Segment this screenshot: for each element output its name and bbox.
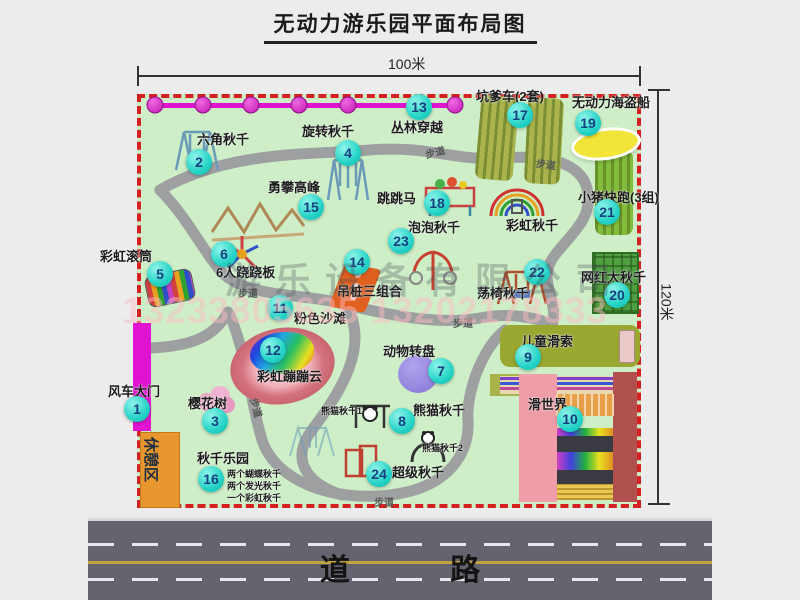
marker-2: 2 bbox=[186, 149, 212, 175]
zipline-pulley bbox=[447, 97, 464, 114]
label-hex-swing: 六角秋千 bbox=[197, 129, 249, 148]
marker-10: 10 bbox=[557, 406, 583, 432]
marker-24: 24 bbox=[366, 461, 392, 487]
marker-12: 12 bbox=[260, 337, 286, 363]
label-panda-swing-1: 熊猫秋千1 bbox=[321, 404, 362, 417]
rest-area-label: 休憩区 bbox=[141, 437, 179, 482]
zipline-tower-icon bbox=[619, 330, 635, 363]
slide-world-wave-slide bbox=[557, 484, 613, 500]
zipline-pulley bbox=[195, 97, 212, 114]
marker-21: 21 bbox=[594, 199, 620, 225]
slide-world-dark-band bbox=[557, 470, 613, 484]
marker-8: 8 bbox=[389, 408, 415, 434]
label-footpath: 步道 bbox=[374, 494, 394, 509]
label-rainbow-swing: 彩虹秋千 bbox=[506, 215, 558, 234]
label-animal-turntable: 动物转盘 bbox=[383, 341, 435, 360]
label-pit-car: 坑爹车(2套) bbox=[476, 86, 544, 105]
marker-1: 1 bbox=[124, 396, 150, 422]
label-rainbow-cloud: 彩虹蹦蹦云 bbox=[257, 366, 322, 385]
marker-16: 16 bbox=[198, 466, 224, 492]
zipline-pulley bbox=[147, 97, 164, 114]
label-panda-swing: 熊猫秋千 bbox=[413, 400, 465, 419]
label-pirate-ship: 无动力海盗船 bbox=[572, 92, 650, 111]
label-rotating-swing: 旋转秋千 bbox=[302, 121, 354, 140]
label-jumping-horse: 跳跳马 bbox=[377, 188, 416, 207]
label-rainbow-roller: 彩虹滚筒 bbox=[100, 246, 152, 265]
label-swing-park-note-3: 一个彩虹秋千 bbox=[227, 491, 281, 504]
label-swing-park: 秋千乐园 bbox=[197, 448, 249, 467]
swing-park-doodles-icon bbox=[286, 420, 346, 460]
slide-world-red-band bbox=[613, 372, 637, 502]
slide-world-dark-band bbox=[557, 436, 613, 452]
watermark-phone: 13233805635 13202178333 bbox=[122, 290, 608, 332]
marker-15: 15 bbox=[298, 194, 324, 220]
label-panda-swing-2: 熊猫秋千2 bbox=[422, 441, 463, 454]
marker-13: 13 bbox=[406, 94, 432, 120]
marker-4: 4 bbox=[335, 140, 361, 166]
marker-17: 17 bbox=[507, 102, 533, 128]
rest-area-box: 休憩区 bbox=[140, 432, 180, 508]
label-bubble-swing: 泡泡秋千 bbox=[408, 217, 460, 236]
label-piggy-run: 小猪快跑(3组) bbox=[578, 187, 659, 206]
park-layout-plan: 无动力游乐园平面布局图 100米 120米 休憩区 bbox=[0, 0, 800, 600]
marker-9: 9 bbox=[515, 344, 541, 370]
label-footpath: 步道 bbox=[535, 155, 557, 173]
marker-23: 23 bbox=[388, 228, 414, 254]
marker-18: 18 bbox=[424, 190, 450, 216]
marker-3: 3 bbox=[202, 408, 228, 434]
zipline-pulley bbox=[243, 97, 260, 114]
zipline-pulley bbox=[291, 97, 308, 114]
slide-world-rainbow-slide bbox=[557, 452, 613, 470]
marker-7: 7 bbox=[428, 358, 454, 384]
marker-5: 5 bbox=[147, 261, 173, 287]
marker-19: 19 bbox=[575, 110, 601, 136]
zipline-pulley bbox=[340, 97, 357, 114]
label-super-swing: 超级秋千 bbox=[392, 462, 444, 481]
